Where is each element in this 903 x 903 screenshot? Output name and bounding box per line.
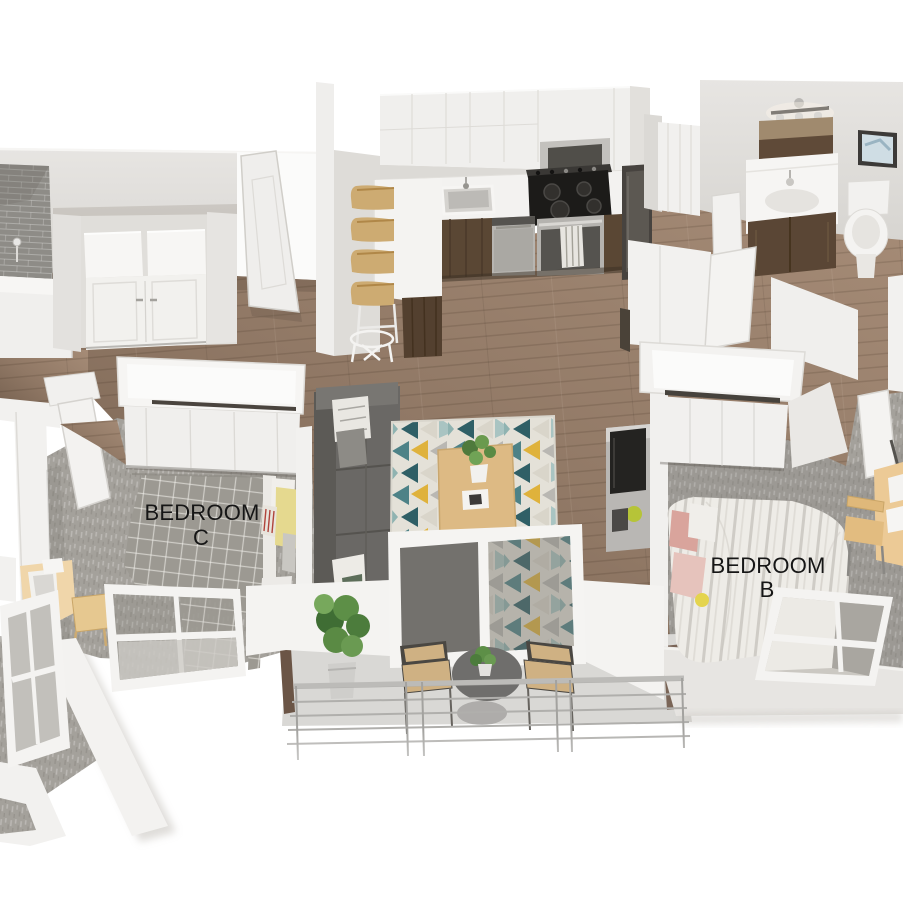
svg-text:B: B xyxy=(760,577,775,602)
svg-text:BEDROOM: BEDROOM xyxy=(144,500,259,525)
svg-text:BEDROOM: BEDROOM xyxy=(710,553,825,578)
svg-text:C: C xyxy=(193,525,209,550)
